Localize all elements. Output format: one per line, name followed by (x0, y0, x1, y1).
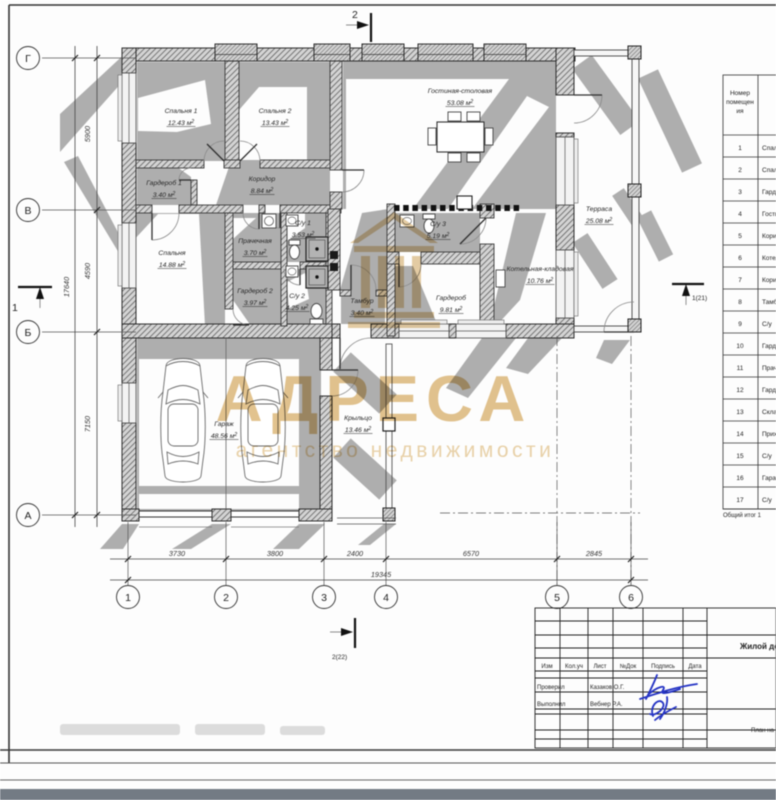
svg-text:4: 4 (383, 592, 389, 604)
svg-text:С/у: С/у (762, 321, 773, 328)
svg-text:Терраса: Терраса (586, 206, 612, 213)
svg-text:11: 11 (737, 365, 744, 372)
svg-text:Кол.уч: Кол.уч (565, 664, 583, 670)
svg-text:3.70 м2: 3.70 м2 (244, 249, 267, 257)
svg-text:2845: 2845 (585, 549, 603, 558)
svg-text:1: 1 (125, 592, 131, 604)
svg-text:9.81 м2: 9.81 м2 (440, 306, 463, 314)
svg-text:6: 6 (628, 592, 634, 604)
svg-text:Прихожая: Прихожая (762, 431, 776, 438)
svg-text:помещен: помещен (726, 99, 754, 106)
svg-text:17: 17 (736, 497, 744, 504)
svg-text:5: 5 (554, 592, 560, 604)
svg-text:6570: 6570 (463, 549, 479, 558)
svg-text:7: 7 (738, 277, 742, 284)
svg-text:Котельная-кладовая: Котельная-кладовая (507, 265, 574, 273)
svg-text:Спальня: Спальня (762, 145, 776, 152)
svg-text:Гардероб: Гардероб (762, 188, 776, 196)
svg-text:С/у 2: С/у 2 (289, 293, 305, 300)
svg-text:Б: Б (25, 327, 32, 339)
svg-text:Котельная: Котельная (762, 255, 776, 262)
svg-text:Коридор: Коридор (762, 277, 776, 284)
svg-text:1: 1 (738, 145, 742, 152)
svg-text:Гараж: Гараж (762, 475, 776, 482)
svg-text:8: 8 (738, 299, 742, 306)
svg-text:Спальня 1: Спальня 1 (165, 108, 198, 115)
svg-text:агентство недвижимости: агентство недвижимости (236, 439, 555, 462)
svg-text:3800: 3800 (267, 549, 283, 558)
svg-text:1: 1 (12, 302, 18, 314)
svg-text:4590: 4590 (83, 263, 92, 279)
svg-text:12: 12 (736, 387, 744, 394)
svg-text:10: 10 (736, 343, 744, 350)
svg-text:2400: 2400 (346, 549, 363, 558)
svg-text:5: 5 (738, 233, 742, 240)
svg-text:5900: 5900 (83, 126, 92, 142)
svg-text:Проверил: Проверил (537, 685, 565, 691)
svg-text:План на: План на (751, 728, 774, 734)
svg-text:Гардероб: Гардероб (762, 342, 776, 350)
svg-text:С/у 3: С/у 3 (430, 221, 446, 228)
svg-text:Коридор: Коридор (249, 175, 276, 183)
svg-text:Прачечная: Прачечная (762, 365, 776, 372)
svg-text:Гостиная: Гостиная (762, 211, 776, 218)
svg-text:25.08 м2: 25.08 м2 (585, 217, 613, 225)
svg-text:Номер: Номер (730, 90, 750, 97)
svg-text:1(21): 1(21) (692, 295, 707, 302)
svg-text:Изм: Изм (541, 664, 552, 670)
svg-text:16: 16 (736, 475, 744, 482)
svg-text:8.84 м2: 8.84 м2 (251, 187, 274, 195)
svg-text:17640: 17640 (62, 277, 71, 297)
svg-text:15: 15 (736, 453, 744, 460)
svg-text:4.25 м2: 4.25 м2 (286, 304, 309, 312)
svg-text:Гардероб: Гардероб (762, 386, 776, 394)
svg-text:С/у: С/у (762, 497, 773, 504)
svg-text:Прачечная: Прачечная (238, 238, 272, 245)
svg-text:С/у: С/у (762, 453, 773, 460)
svg-text:2: 2 (223, 592, 229, 604)
svg-text:Спальня 2: Спальня 2 (259, 108, 292, 115)
svg-text:10.76 м2: 10.76 м2 (527, 277, 554, 285)
svg-text:3.97 м2: 3.97 м2 (244, 299, 267, 307)
svg-text:13.43 м2: 13.43 м2 (262, 119, 289, 127)
svg-text:14.88 м2: 14.88 м2 (159, 261, 186, 269)
svg-text:Склад: Склад (762, 409, 776, 416)
svg-text:Тамбур: Тамбур (762, 298, 776, 306)
svg-text:7150: 7150 (83, 416, 92, 432)
svg-text:Подпись: Подпись (651, 664, 675, 670)
svg-text:Выполнил: Выполнил (537, 702, 566, 708)
svg-text:13: 13 (736, 409, 744, 416)
svg-text:3.53 м2: 3.53 м2 (292, 231, 315, 239)
svg-text:12.43 м2: 12.43 м2 (168, 119, 195, 127)
svg-text:2: 2 (352, 9, 358, 21)
svg-text:Общий итог 1: Общий итог 1 (723, 512, 762, 519)
svg-text:2: 2 (738, 167, 742, 174)
svg-text:3: 3 (738, 189, 742, 196)
svg-text:4: 4 (738, 211, 742, 218)
svg-text:6: 6 (738, 255, 742, 262)
svg-text:Коридор: Коридор (762, 233, 776, 240)
svg-text:Гардероб: Гардероб (436, 294, 467, 302)
svg-text:А: А (24, 510, 31, 522)
svg-text:3.40 м2: 3.40 м2 (153, 191, 176, 199)
svg-text:3: 3 (321, 592, 327, 604)
svg-text:Спальня: Спальня (158, 250, 186, 257)
svg-text:Гардероб 1: Гардероб 1 (146, 179, 182, 187)
svg-text:Гардероб 2: Гардероб 2 (237, 287, 273, 295)
svg-text:14: 14 (736, 431, 744, 438)
svg-text:Жилой дом: Жилой дом (739, 642, 776, 651)
svg-text:ия: ия (736, 108, 744, 115)
svg-text:С/у 1: С/у 1 (295, 220, 311, 227)
svg-text:№Док: №Док (620, 663, 637, 670)
svg-text:9: 9 (738, 321, 742, 328)
svg-text:2(22): 2(22) (332, 654, 347, 661)
svg-text:Вебнер Р.А.: Вебнер Р.А. (590, 702, 623, 708)
svg-text:19345: 19345 (371, 570, 392, 579)
svg-text:Лист: Лист (593, 664, 606, 670)
svg-text:В: В (24, 205, 31, 217)
svg-text:Дата: Дата (688, 664, 702, 670)
svg-text:53.08 м2: 53.08 м2 (447, 99, 474, 107)
svg-text:АДРЕСА: АДРЕСА (216, 362, 533, 435)
svg-text:Спальня: Спальня (762, 167, 776, 174)
svg-text:3730: 3730 (169, 549, 185, 558)
svg-text:Гостиная-столовая: Гостиная-столовая (428, 88, 493, 95)
svg-text:Казаков О.Г.: Казаков О.Г. (590, 685, 625, 691)
svg-text:Г: Г (25, 53, 31, 65)
